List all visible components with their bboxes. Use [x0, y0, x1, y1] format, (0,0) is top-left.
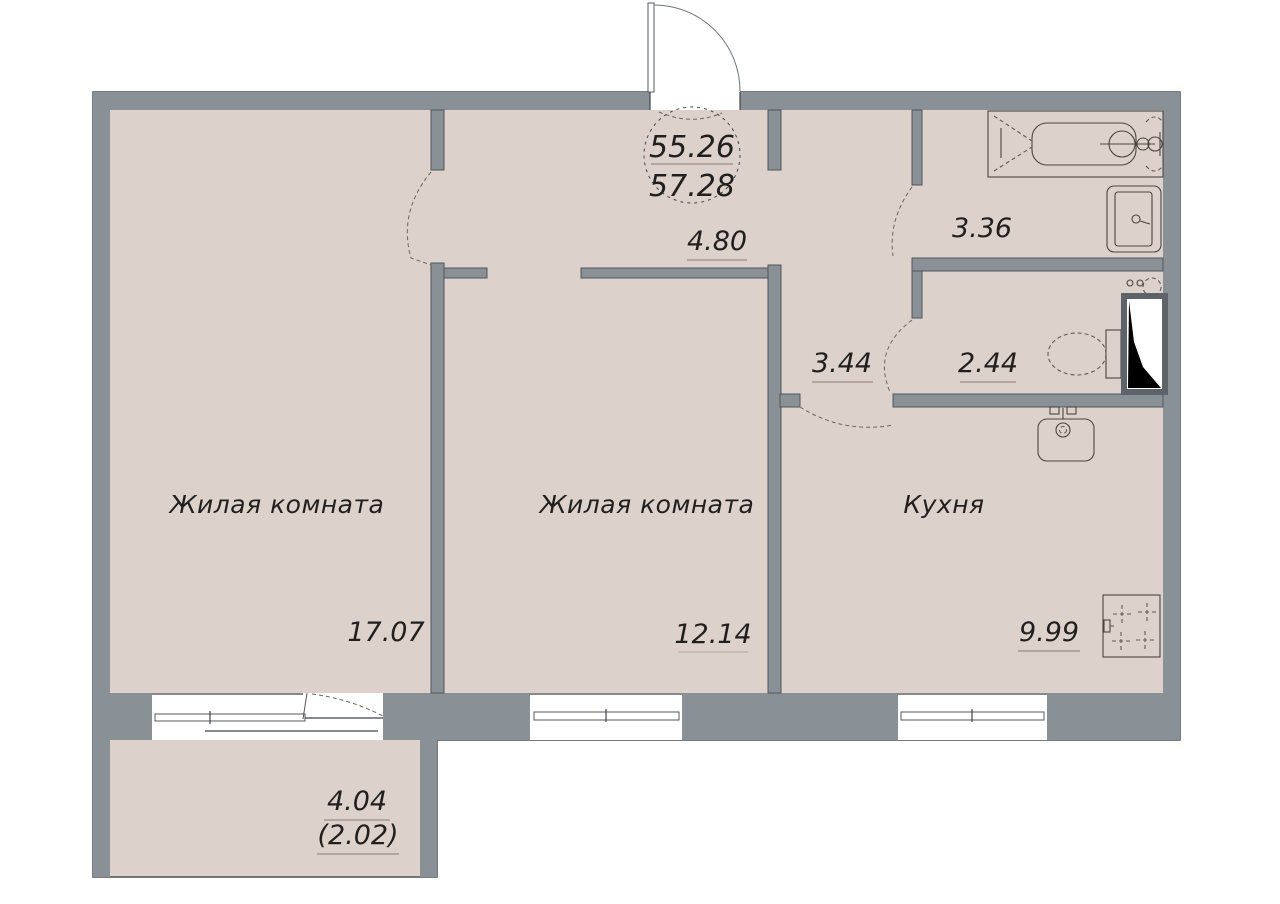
wall-bottom-1 [93, 693, 152, 740]
wall-bottom-3 [682, 693, 898, 740]
wall-kitchen-top-a [780, 394, 800, 407]
corridor-area: 4.80 [687, 226, 747, 257]
balcony-wall-left [93, 740, 110, 877]
entrance-door-arc [654, 5, 740, 91]
window-frame [155, 714, 305, 721]
balcony-wall-right [420, 740, 437, 877]
total-area-alt-value: 57.28 [649, 169, 735, 204]
living2-area: 12.14 [674, 619, 751, 650]
wall-bottom-4 [1047, 693, 1180, 740]
wall-top-right [740, 92, 1180, 110]
entrance-door-leaf [648, 3, 654, 92]
wall-top-left [93, 92, 650, 110]
vent-shaft-icon [1124, 296, 1165, 392]
wall-corridor-stub [768, 110, 781, 170]
kitchen-area: 9.99 [1019, 617, 1079, 648]
living2-window [530, 693, 682, 740]
balcony-area: 4.04 [327, 786, 387, 817]
wall-bottom-2 [383, 693, 530, 740]
wall-living2-right [768, 265, 781, 693]
living2-name: Жилая комната [538, 490, 755, 519]
hallway-area: 3.44 [812, 348, 872, 379]
wall-kitchen-top-b [893, 394, 1163, 407]
balcony-area-reduced: (2.02) [317, 820, 398, 851]
toilet-area: 2.44 [958, 348, 1018, 379]
wall-toilet-left [912, 271, 922, 318]
wall-living1-top-stub [431, 110, 444, 170]
kitchen-window [898, 693, 1047, 740]
living1-name: Жилая комната [168, 490, 385, 519]
living1-window-balcony-door [152, 693, 383, 740]
total-area-value: 55.26 [649, 130, 735, 165]
entrance-door [648, 3, 740, 119]
kitchen-name: Кухня [903, 490, 984, 519]
wall-right [1163, 92, 1180, 740]
entrance-opening [650, 92, 740, 110]
wall-living2-top-b [581, 268, 768, 278]
floor-plan: 55.26 57.28 Жилая комната 17.07 Жилая ко… [0, 0, 1280, 904]
wall-living1-right [431, 263, 444, 693]
living1-area: 17.07 [347, 617, 424, 648]
wall-living2-top-a [444, 268, 487, 278]
bathroom-area: 3.36 [952, 213, 1012, 244]
wall-bathroom-left-a [912, 110, 922, 185]
wall-left [93, 92, 110, 693]
wall-bathroom-toilet-divider [912, 258, 1163, 271]
